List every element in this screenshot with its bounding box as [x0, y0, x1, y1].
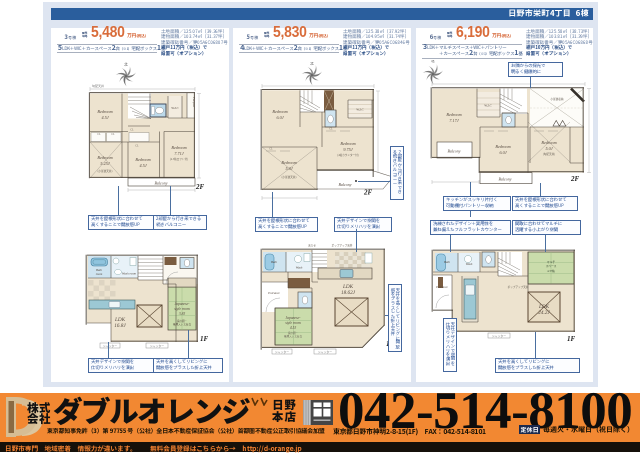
- svg-text:style room: style room: [285, 321, 301, 325]
- svg-text:5.25J: 5.25J: [100, 161, 110, 166]
- svg-text:Bedroom: Bedroom: [495, 144, 510, 149]
- svg-text:小屋裏収納: 小屋裏収納: [551, 97, 564, 101]
- svg-text:1F: 1F: [200, 335, 209, 343]
- svg-text:Entrance: Entrance: [435, 285, 448, 289]
- svg-text:Bath: Bath: [271, 260, 277, 264]
- svg-text:2F: 2F: [570, 175, 580, 183]
- svg-text:Parquet: Parquet: [192, 96, 196, 107]
- svg-text:5.0J: 5.0J: [285, 166, 293, 171]
- svg-text:CL: CL: [269, 148, 273, 151]
- svg-text:Bedroom: Bedroom: [541, 140, 556, 145]
- svg-text:9.75J: 9.75J: [343, 147, 353, 152]
- svg-text:7.17J: 7.17J: [449, 118, 459, 123]
- svg-text:1F: 1F: [567, 335, 576, 343]
- svg-text:吊押入レス仕立: 吊押入レス仕立: [284, 335, 303, 339]
- svg-text:ポップアップ天井: ポップアップ天井: [332, 243, 353, 247]
- svg-text:W.I.C: W.I.C: [356, 108, 364, 112]
- svg-text:16.8J: 16.8J: [114, 323, 126, 329]
- svg-text:Bedroom: Bedroom: [272, 109, 287, 114]
- svg-text:Bedroom: Bedroom: [340, 141, 355, 146]
- svg-text:Balcony: Balcony: [447, 149, 460, 154]
- svg-text:6.0J: 6.0J: [276, 115, 284, 120]
- svg-text:CL: CL: [329, 128, 333, 131]
- svg-text:W.I.C: W.I.C: [171, 106, 179, 110]
- svg-text:Bedroom: Bedroom: [97, 155, 112, 160]
- svg-text:3.8J: 3.8J: [179, 312, 186, 316]
- svg-text:Wash room: Wash room: [122, 272, 137, 276]
- svg-text:Bath: Bath: [444, 260, 450, 264]
- svg-text:床の間・: 床の間・: [288, 331, 298, 335]
- svg-text:(小屋裏天井): (小屋裏天井): [282, 175, 297, 179]
- svg-text:ポップアップ天井: ポップアップ天井: [508, 285, 529, 289]
- svg-text:シャッター: シャッター: [275, 350, 289, 354]
- svg-text:床の間・: 床の間・: [177, 319, 187, 323]
- svg-text:スペース: スペース: [546, 264, 557, 268]
- svg-text:CL: CL: [135, 145, 139, 148]
- svg-text:(勾配天井): (勾配天井): [543, 152, 555, 156]
- svg-text:4.5J: 4.5J: [139, 163, 147, 168]
- svg-text:4.5J: 4.5J: [101, 115, 109, 120]
- svg-text:CL: CL: [111, 133, 115, 136]
- svg-text:Bedroom: Bedroom: [97, 109, 112, 114]
- svg-text:W.I.C: W.I.C: [484, 104, 492, 108]
- svg-text:24.2J: 24.2J: [538, 309, 550, 316]
- svg-text:シャッター: シャッター: [150, 344, 164, 348]
- svg-text:Bedroom: Bedroom: [171, 145, 186, 150]
- svg-text:マルチ: マルチ: [547, 260, 556, 264]
- svg-text:room: room: [96, 272, 103, 276]
- svg-text:天カセ: 天カセ: [308, 243, 316, 247]
- svg-text:7.71J: 7.71J: [174, 151, 184, 156]
- svg-text:(4帖カウンター付): (4帖カウンター付): [337, 153, 358, 157]
- svg-text:4.37帖: 4.37帖: [547, 269, 555, 273]
- svg-text:2F: 2F: [363, 189, 373, 197]
- svg-text:Japanese-: Japanese-: [175, 302, 191, 306]
- svg-text:5.0J: 5.0J: [545, 146, 553, 151]
- svg-text:Wash: Wash: [466, 262, 473, 266]
- svg-text:CL: CL: [130, 129, 134, 132]
- svg-text:北: 北: [310, 62, 314, 66]
- svg-text:Bedroom: Bedroom: [446, 112, 461, 117]
- svg-text:北: 北: [124, 62, 128, 66]
- svg-text:シャッター: シャッター: [492, 334, 506, 338]
- svg-text:Balcony: Balcony: [338, 182, 351, 187]
- svg-text:シャッター: シャッター: [318, 350, 332, 354]
- svg-text:style room: style room: [174, 307, 190, 311]
- svg-text:北: 北: [431, 60, 435, 63]
- svg-text:(小屋裏天井): (小屋裏天井): [98, 169, 113, 173]
- svg-text:2F: 2F: [195, 183, 205, 191]
- svg-text:Bedroom: Bedroom: [281, 160, 296, 165]
- svg-text:18.62J: 18.62J: [341, 290, 356, 296]
- svg-text:Balcony: Balcony: [498, 177, 511, 182]
- svg-text:吊押入レス仕立: 吊押入レス仕立: [173, 323, 192, 327]
- svg-text:4.5J: 4.5J: [290, 326, 297, 330]
- svg-text:シャッター: シャッター: [103, 344, 117, 348]
- svg-text:Japanese-: Japanese-: [286, 316, 302, 320]
- svg-text:Wash: Wash: [296, 266, 303, 270]
- svg-text:(4.5帖ロフト付): (4.5帖ロフト付): [170, 157, 188, 161]
- svg-text:勾配天井: 勾配天井: [92, 83, 104, 88]
- svg-text:6.0J: 6.0J: [499, 150, 507, 155]
- svg-text:Balcony: Balcony: [154, 181, 167, 186]
- svg-text:Entrance: Entrance: [267, 291, 280, 295]
- svg-text:Bedroom: Bedroom: [135, 157, 150, 162]
- svg-text:CL: CL: [97, 133, 101, 136]
